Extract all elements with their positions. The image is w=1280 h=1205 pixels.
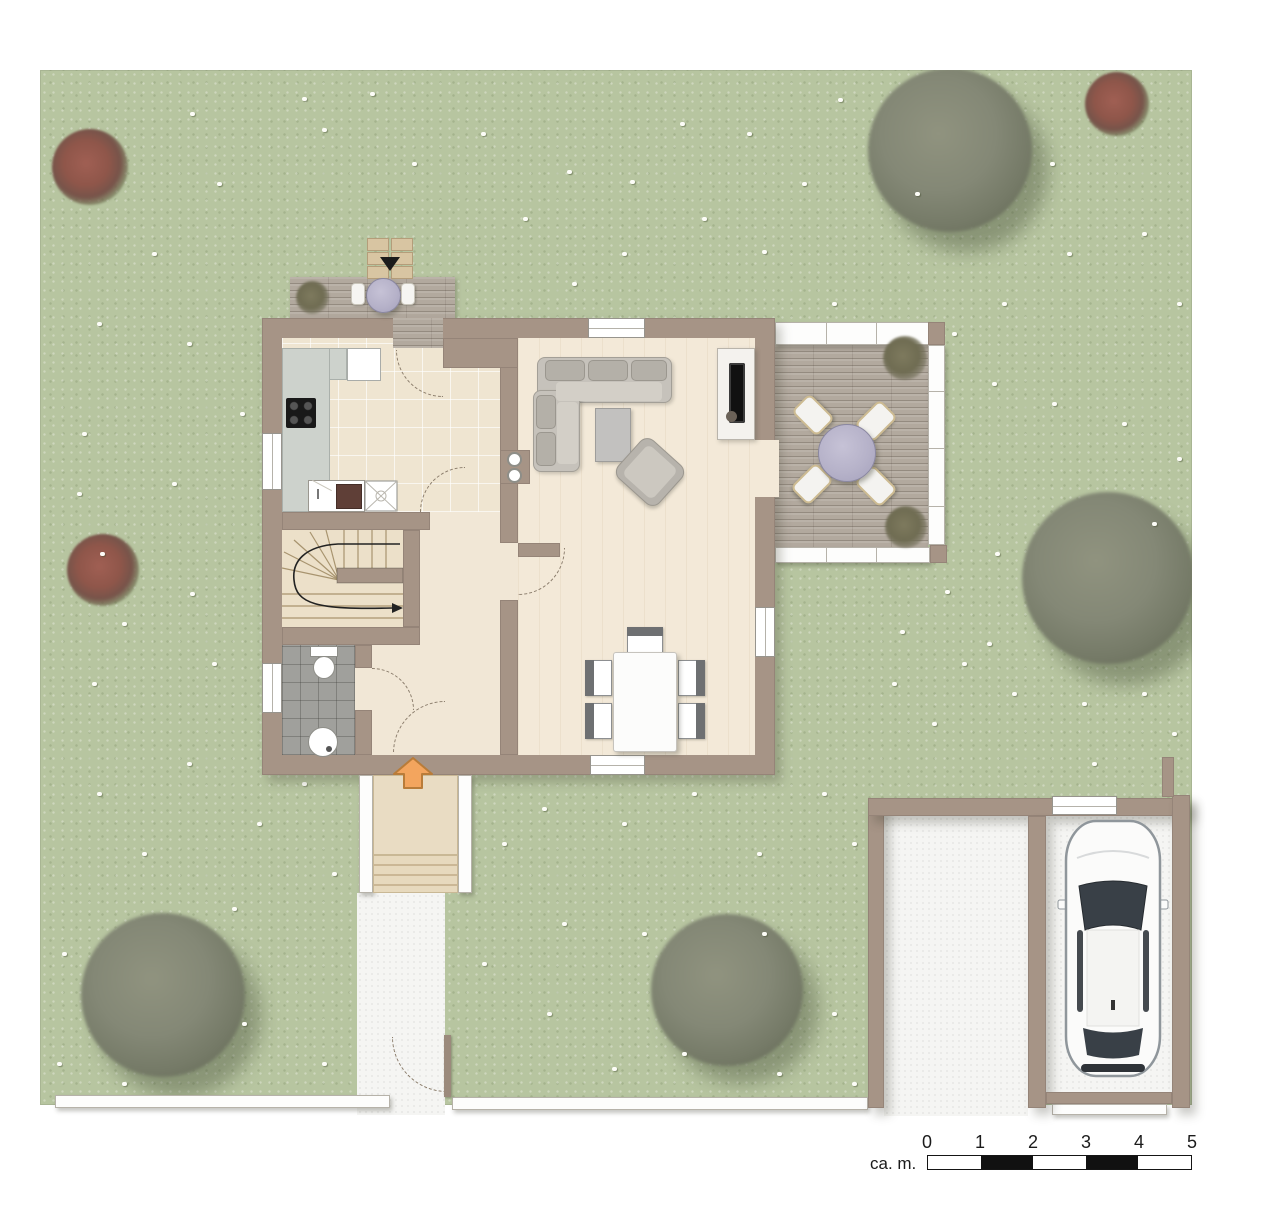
wall-pier-entry	[443, 338, 518, 368]
flower-dot	[932, 722, 937, 726]
flower-dot	[1092, 762, 1097, 766]
wall-center-lower	[500, 600, 518, 755]
terrace-bush-top	[883, 336, 927, 380]
tree-icon	[651, 914, 803, 1066]
scale-segment	[1033, 1156, 1086, 1169]
flower-dot	[832, 302, 837, 306]
deck-bush	[296, 281, 329, 314]
dining-chair-left-2	[585, 703, 612, 739]
flower-dot	[370, 92, 375, 96]
dining-chair-right-1	[678, 660, 705, 696]
dining-chair-right-2	[678, 703, 705, 739]
flower-dot	[187, 342, 192, 346]
flower-dot	[995, 552, 1000, 556]
flower-dot	[412, 162, 417, 166]
garage-wall-middle	[1028, 816, 1046, 1108]
scale-bar: ca. m. 012345	[870, 1132, 1200, 1188]
basin-x-icon	[364, 480, 398, 512]
deck-chair-left	[351, 283, 365, 305]
flower-dot	[822, 792, 827, 796]
step-rail-right	[458, 775, 472, 893]
garage-wall-left	[868, 800, 884, 1108]
flower-dot	[682, 1052, 687, 1056]
flower-dot	[1172, 732, 1177, 736]
flower-dot	[232, 907, 237, 911]
coffee-table	[595, 408, 631, 462]
flower-dot	[217, 182, 222, 186]
flower-dot	[187, 762, 192, 766]
flower-dot	[302, 97, 307, 101]
scale-tick: 5	[1187, 1132, 1197, 1153]
flower-dot	[1002, 302, 1007, 306]
flower-dot	[1177, 302, 1182, 306]
living-window-south	[590, 755, 645, 775]
sofa-cushion	[631, 360, 667, 381]
scale-tick-labels: 012345	[927, 1132, 1192, 1152]
flower-dot	[962, 662, 967, 666]
flower-dot	[1012, 692, 1017, 696]
flower-dot	[122, 622, 127, 626]
flower-dot	[915, 192, 920, 196]
flower-dot	[987, 642, 992, 646]
red-shrub-icon	[1085, 72, 1149, 136]
scale-segment	[981, 1156, 1034, 1169]
flower-dot	[97, 322, 102, 326]
tree-icon	[1022, 492, 1192, 664]
decor-bowl	[726, 411, 737, 422]
flower-dot	[1052, 402, 1057, 406]
deck-table	[366, 278, 401, 313]
flower-dot	[190, 592, 195, 596]
chimney-flue-2	[507, 468, 522, 483]
flower-dot	[900, 630, 905, 634]
wall-stairs-right	[403, 530, 420, 627]
flower-dot	[332, 872, 337, 876]
flower-dot	[142, 852, 147, 856]
garage-gate-opening	[1052, 796, 1117, 815]
flower-dot	[838, 98, 843, 102]
terrace-border-right	[928, 345, 945, 545]
flower-dot	[212, 662, 217, 666]
entrance-arrow-icon	[391, 755, 435, 791]
wall-bath-right-upper	[355, 645, 372, 668]
dining-table	[613, 652, 677, 752]
flower-dot	[542, 807, 547, 811]
flower-dot	[122, 1082, 127, 1086]
sofa-cushion	[545, 360, 585, 381]
scale-bar-segments	[927, 1155, 1192, 1170]
sofa-cushion	[588, 360, 628, 381]
tree-icon	[868, 70, 1032, 232]
flower-dot	[1142, 232, 1147, 236]
flower-dot	[62, 952, 67, 956]
scale-segment	[1086, 1156, 1139, 1169]
flower-dot	[257, 822, 262, 826]
flower-dot	[892, 682, 897, 686]
flower-dot	[190, 112, 195, 116]
flower-dot	[762, 932, 767, 936]
flower-dot	[302, 782, 307, 786]
flower-dot	[952, 332, 957, 336]
walkway-arrow-icon	[380, 257, 400, 271]
wall-bath-right-lower	[355, 710, 372, 755]
flower-dot	[57, 1062, 62, 1066]
toilet-bowl	[313, 656, 335, 679]
flower-dot	[702, 217, 707, 221]
terrace-post-bottomright	[930, 545, 947, 563]
flower-dot	[172, 482, 177, 486]
flower-dot	[322, 1062, 327, 1066]
flower-dot	[322, 128, 327, 132]
sofa-cushion	[536, 395, 556, 429]
garage-wall-right	[1172, 795, 1190, 1108]
sofa-cushion	[536, 432, 556, 466]
flower-dot	[852, 842, 857, 846]
flower-dot	[622, 252, 627, 256]
garden-gate	[444, 1035, 451, 1097]
washbasin	[308, 727, 338, 757]
flower-dot	[523, 217, 528, 221]
flower-dot	[1050, 162, 1055, 166]
garage-wall-stub	[1162, 757, 1174, 797]
flower-dot	[242, 1022, 247, 1026]
flower-dot	[992, 382, 997, 386]
flower-dot	[692, 792, 697, 796]
fence-left	[55, 1095, 390, 1108]
flower-dot	[1082, 702, 1087, 706]
entrance-steps	[373, 855, 458, 893]
flower-dot	[1152, 522, 1157, 526]
step-rail-left	[359, 775, 373, 893]
flower-dot	[747, 132, 752, 136]
living-window-north	[588, 318, 645, 338]
dining-chair-top	[627, 627, 663, 655]
wall-center-upper	[500, 338, 518, 543]
dining-chair-left-1	[585, 660, 612, 696]
wall-kitchen-south	[282, 512, 430, 530]
terrace-border-bottom	[775, 547, 930, 563]
flower-dot	[1177, 457, 1182, 461]
flower-dot	[482, 962, 487, 966]
living-window-east	[755, 607, 775, 657]
flower-dot	[572, 282, 577, 286]
driveway	[884, 816, 1028, 1116]
red-shrub-icon	[52, 129, 128, 205]
flower-dot	[1122, 422, 1127, 426]
flower-dot	[630, 180, 635, 184]
flower-dot	[100, 552, 105, 556]
fence-garage	[1052, 1104, 1167, 1115]
car-icon	[1057, 818, 1169, 1080]
flower-dot	[82, 432, 87, 436]
garage-wall-bottom	[1046, 1092, 1172, 1104]
scale-tick: 0	[922, 1132, 932, 1153]
kitchen-window	[262, 433, 282, 490]
terrace-bush-bottom	[885, 506, 927, 548]
terrace-door-opening	[755, 440, 779, 497]
wall-stairs-bottom	[282, 627, 420, 645]
flower-dot	[152, 252, 157, 256]
flower-dot	[502, 842, 507, 846]
flower-dot	[547, 1012, 552, 1016]
flower-dot	[622, 822, 627, 826]
flower-dot	[240, 412, 245, 416]
flower-dot	[945, 590, 950, 594]
flower-dot	[77, 492, 82, 496]
fridge-icon	[347, 348, 381, 381]
flower-dot	[762, 250, 767, 254]
scale-tick: 2	[1028, 1132, 1038, 1153]
scale-unit-label: ca. m.	[870, 1154, 916, 1174]
flower-dot	[757, 852, 762, 856]
scale-tick: 4	[1134, 1132, 1144, 1153]
tree-icon	[81, 913, 245, 1077]
flower-dot	[832, 1012, 837, 1016]
flower-dot	[802, 182, 807, 186]
kitchen-appliance	[336, 484, 362, 509]
flower-dot	[777, 1072, 782, 1076]
terrace-post-topright	[928, 322, 945, 345]
scale-tick: 3	[1081, 1132, 1091, 1153]
red-shrub-icon	[67, 534, 139, 606]
flower-dot	[852, 1082, 857, 1086]
flower-dot	[1142, 692, 1147, 696]
site-plan: ca. m. 012345	[0, 0, 1280, 1205]
chimney-flue-1	[507, 452, 522, 467]
flower-dot	[97, 792, 102, 796]
flower-dot	[612, 1067, 617, 1071]
sofa-seat	[557, 402, 578, 464]
scale-segment	[1138, 1156, 1191, 1169]
sofa-seat	[556, 382, 662, 401]
deck-chair-right	[401, 283, 415, 305]
cooktop-icon	[286, 398, 316, 428]
flower-dot	[92, 682, 97, 686]
bathroom-window	[262, 663, 282, 713]
flower-dot	[481, 132, 486, 136]
flower-dot	[680, 122, 685, 126]
flower-dot	[567, 170, 572, 174]
deck-door-threshold	[393, 318, 443, 348]
flower-dot	[562, 922, 567, 926]
flower-dot	[1067, 252, 1072, 256]
fence-middle	[452, 1097, 868, 1110]
scale-tick: 1	[975, 1132, 985, 1153]
terrace-table	[818, 424, 876, 482]
winder-stairs	[282, 530, 403, 627]
scale-segment	[928, 1156, 981, 1169]
washbasin-tap	[326, 746, 332, 752]
flower-dot	[642, 932, 647, 936]
garage-wall-top	[868, 798, 1190, 816]
